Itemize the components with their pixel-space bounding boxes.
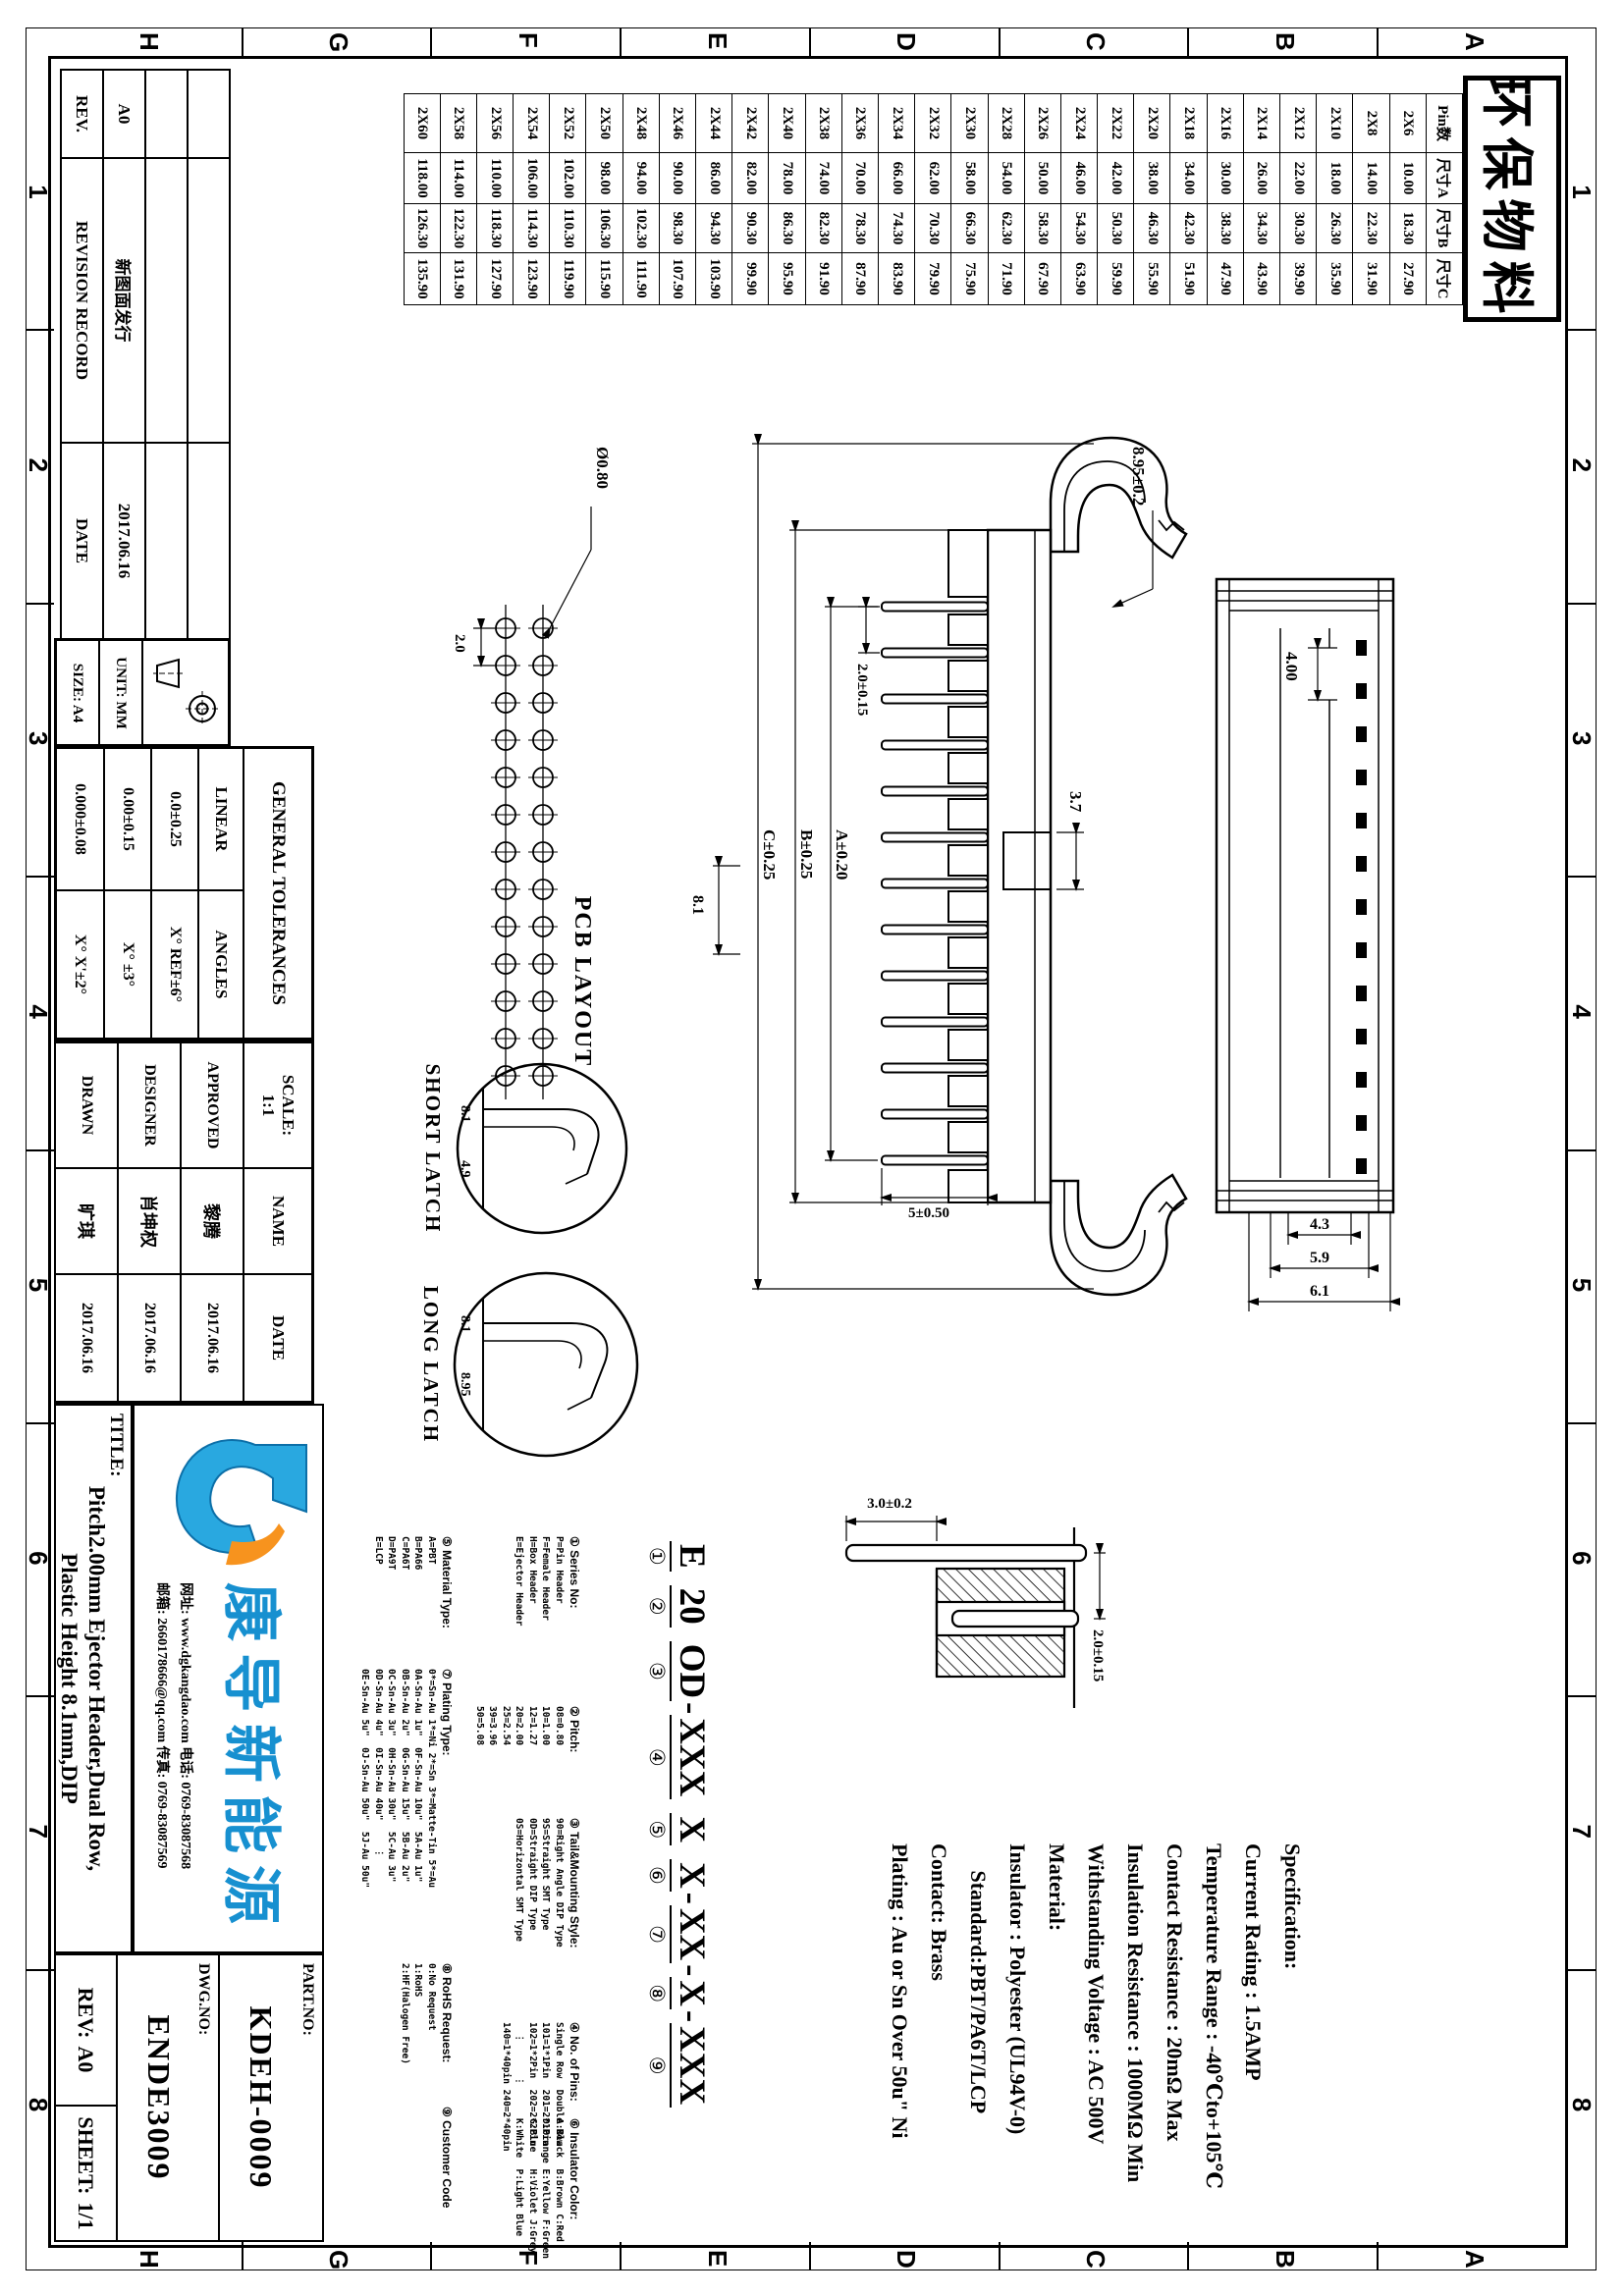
linear-label: LINEAR xyxy=(198,748,244,890)
zone-row-label: D xyxy=(891,32,921,51)
linear-value: 0.0±0.25 xyxy=(151,748,198,890)
legend-title: ⑤ Material Type: xyxy=(440,1536,454,1664)
pin-table-cell: 71.90 xyxy=(988,253,1024,305)
pin-table-row: 2X3262.0070.3079.90 xyxy=(915,94,951,305)
pin-table-cell: 106.30 xyxy=(586,204,623,253)
code-segment-text: X xyxy=(670,1859,711,1892)
legend-line: 0*=Sn-Au 1*=Ni 2*=Sn 3*=Matte-Tin 5*=Au xyxy=(425,1669,439,1957)
legend-line: E=LCP xyxy=(372,1536,386,1664)
tolerances-block: GENERAL TOLERANCES LINEAR 0.0±0.25 0.00±… xyxy=(54,746,314,1041)
pin-table-cell: 103.90 xyxy=(696,253,732,305)
pin-table-cell: 2X36 xyxy=(841,94,878,153)
dim-pin-pitch: 2.0±0.15 xyxy=(854,664,870,716)
legend-line: 0D-Sn-Au 4u" 0I-Sn-Au 40u" ⋮ xyxy=(372,1669,386,1957)
part-no-label: PART.NO: xyxy=(298,1963,316,2036)
pin-table-row: 2X3466.0074.3083.90 xyxy=(879,94,915,305)
pin-table-cell: 94.30 xyxy=(696,204,732,253)
pin-table-cell: 2X16 xyxy=(1207,94,1243,153)
pin-table-cell: 131.90 xyxy=(440,253,476,305)
legend-line: 90=Right Angle DIP Type xyxy=(553,1818,567,2016)
zone-col-label: 1 xyxy=(23,185,53,198)
pin-table-cell: 110.00 xyxy=(476,153,513,204)
zone-tick xyxy=(809,27,811,56)
dim-long-1: 8.1 xyxy=(458,1315,472,1333)
angles-label: ANGLES xyxy=(198,890,244,1039)
code-segment-text: OD xyxy=(670,1641,711,1702)
drawing-sheet: 4.00 4.3 5.9 6.1 xyxy=(0,0,1624,2296)
tolerances-title: GENERAL TOLERANCES xyxy=(244,748,312,1039)
pin-table-cell: 30.00 xyxy=(1207,153,1243,204)
pin-table-row: 2X1630.0038.3047.90 xyxy=(1207,94,1243,305)
logo-blue-shape xyxy=(177,1440,306,1553)
pin-table-cell: 115.90 xyxy=(586,253,623,305)
rev-label: REV: xyxy=(74,1988,99,2039)
code-segment-text: 20 xyxy=(670,1585,711,1628)
dim-short-1: 8.1 xyxy=(458,1105,472,1123)
latch-left xyxy=(1051,438,1186,558)
legend-line: B=PA66 xyxy=(411,1536,425,1664)
zone-col-label: 8 xyxy=(1566,2098,1597,2111)
zone-tick xyxy=(999,27,1001,56)
zone-tick xyxy=(1568,1149,1597,1151)
pin-table-cell: 110.30 xyxy=(550,204,586,253)
eco-material-text: 环保物料 xyxy=(1474,76,1551,323)
pin-table-cell: 38.30 xyxy=(1207,204,1243,253)
legend-line: 12=1.27 xyxy=(526,1706,540,1812)
pin-table-cell: 2X50 xyxy=(586,94,623,153)
dim-pin-len: 5±0.50 xyxy=(908,1205,949,1221)
doc-block: PART.NO: KDEH-0009 DWG.NO: ENDE3009 REV:… xyxy=(54,1953,324,2242)
dwg-no-value: ENDE3009 xyxy=(140,1955,177,2240)
dim-pad-dia: Ø0.80 xyxy=(593,447,612,489)
top-view: 4.00 4.3 5.9 6.1 xyxy=(1217,579,1393,1311)
dim-sec-pitch: 2.0±0.15 xyxy=(1090,1629,1106,1682)
legend-column: ⑧ RoHS Request:0:No Request1:RoHS2:HF(Ha… xyxy=(399,1963,455,2101)
legend-line: A:Black B:Brown C:Red xyxy=(553,2118,567,2242)
dim-latch-h: 8.95±0.2 xyxy=(1129,447,1148,506)
zone-row-label: H xyxy=(134,2250,164,2269)
revision-header-record: REVISION RECORD xyxy=(61,158,103,443)
pin-table-cell: 2X20 xyxy=(1134,94,1170,153)
pin-table-row: 2X5098.00106.30115.90 xyxy=(586,94,623,305)
zone-tick xyxy=(26,1149,54,1151)
legend-line: F=Female Header xyxy=(539,1536,553,1698)
pin-table-cell: 107.90 xyxy=(659,253,695,305)
pin-table-row: 2X1222.0030.3039.90 xyxy=(1280,94,1317,305)
pin-table-cell: 2X52 xyxy=(550,94,586,153)
signoff-name: 旷琪 xyxy=(55,1168,118,1274)
long-latch-label: LONG LATCH xyxy=(419,1286,443,1443)
pin-table-cell: 78.30 xyxy=(841,204,878,253)
title-line-2: Plastic Height 8.1mm,DIP xyxy=(56,1406,81,1951)
scale-value: 1:1 xyxy=(258,1095,278,1117)
pin-table-cell: 26.00 xyxy=(1243,153,1279,204)
pin-table-row: 2X2242.0050.3059.90 xyxy=(1098,94,1134,305)
zone-row-label: B xyxy=(1270,2250,1300,2269)
legend-line: 2:HF(Halogen Free) xyxy=(399,1963,412,2101)
legend-line: K:White P:Light Blue xyxy=(513,2118,526,2242)
pin-table-row: 2X4078.0086.3095.90 xyxy=(769,94,805,305)
pin-table-cell: 22.30 xyxy=(1353,204,1389,253)
code-segment: XX⑦ xyxy=(644,1905,711,1963)
code-segment: X⑥ xyxy=(644,1859,711,1892)
legend-line: 9S=Straight SMT Type xyxy=(539,1818,553,2016)
signoff-name: 黎腾 xyxy=(181,1168,244,1274)
legend-line: 08=0.80 xyxy=(553,1706,567,1812)
zone-tick xyxy=(1568,1969,1597,1971)
dim-w2: 5.9 xyxy=(1310,1250,1329,1266)
code-segment-number: ① xyxy=(644,1547,670,1566)
legend-line: A=PBT xyxy=(425,1536,439,1664)
code-segment: XXX⑨ xyxy=(644,2023,711,2108)
pin-table-cell: 2X24 xyxy=(1060,94,1097,153)
pin-table-cell: 2X6 xyxy=(1389,94,1426,153)
pin-table-cell: 51.90 xyxy=(1170,253,1207,305)
code-segment: E① xyxy=(644,1541,711,1572)
dim-short-2: 4.9 xyxy=(458,1160,472,1178)
pin-table-row: 2X60118.00126.30135.90 xyxy=(404,94,440,305)
short-latch-detail: 8.1 4.9 SHORT LATCH xyxy=(421,1064,626,1234)
ordering-code: E①20②OD③-XXX④X⑤X⑥-XX⑦-X⑧-XXX⑨ xyxy=(644,1541,711,2268)
zone-row-label: F xyxy=(513,32,543,48)
pin-table-cell: 2X12 xyxy=(1280,94,1317,153)
zone-tick xyxy=(1568,1695,1597,1697)
pin-table-cell: 10.00 xyxy=(1389,153,1426,204)
zone-col-label: 6 xyxy=(23,1551,53,1565)
zone-col-label: 3 xyxy=(1566,731,1597,745)
legend-title: ⑧ RoHS Request: xyxy=(440,1963,454,2101)
dwg-no-cell: DWG.NO: ENDE3009 xyxy=(116,1955,218,2240)
zone-row-label: G xyxy=(323,2250,353,2269)
pin-table-cell: 59.90 xyxy=(1098,253,1134,305)
zone-tick xyxy=(1568,603,1597,605)
code-segment-number: ⑦ xyxy=(644,1925,670,1944)
zone-col-label: 4 xyxy=(23,1004,53,1018)
pin-table-cell: 102.00 xyxy=(550,153,586,204)
pin-table-cell: 106.00 xyxy=(514,153,550,204)
code-separator: - xyxy=(672,1963,711,1977)
title-line-1: Pitch2.00mm Ejector Header,Dual Row, xyxy=(83,1406,109,1951)
pin-table-cell: 127.90 xyxy=(476,253,513,305)
angles-value: X° X'±2° xyxy=(56,890,104,1039)
code-separator: - xyxy=(672,1892,711,1905)
legend-title: ③ Tail&Mounting Style: xyxy=(568,1818,581,2016)
legend-line: 0A-Sn-Au 1u" 0F-Sn-Au 10u" 5A-Au 1u" xyxy=(411,1669,425,1957)
pin-table-cell: 46.00 xyxy=(1060,153,1097,204)
unit-cell: UNIT: MM xyxy=(99,640,142,746)
revision-entry-row: A0 新图面发行 2017.06.16 xyxy=(103,70,145,639)
dim-sec-len: 3.0±0.2 xyxy=(867,1496,912,1512)
pin-table-cell: 86.30 xyxy=(769,204,805,253)
pin-table-cell: 2X28 xyxy=(988,94,1024,153)
name-header: NAME xyxy=(244,1168,312,1274)
legend-line: E=Ejector Header xyxy=(513,1536,526,1698)
pin-table-cell: 2X32 xyxy=(915,94,951,153)
pin-table-cell: 67.90 xyxy=(1024,253,1060,305)
pin-table-cell: 2X14 xyxy=(1243,94,1279,153)
revision-empty-row xyxy=(188,70,230,639)
pin-table-cell: 70.00 xyxy=(841,153,878,204)
signoff-block: SCALE: 1:1 NAME DATE APPROVED黎腾2017.06.1… xyxy=(54,1041,314,1404)
zone-row-label: D xyxy=(891,2250,921,2269)
legend-line: 0B-Sn-Au 2u" 0G-Sn-Au 15u" 5B-Au 2u" xyxy=(399,1669,412,1957)
code-segment: XXX④ xyxy=(644,1715,711,1799)
zone-tick xyxy=(1377,27,1379,56)
pin-table-cell: 2X44 xyxy=(696,94,732,153)
dim-span-a: A±0.20 xyxy=(833,829,851,880)
pin-table-cell: 90.30 xyxy=(732,204,769,253)
spec-line: Standard:PBT/PA6T/LCP xyxy=(958,1843,998,2240)
zone-tick xyxy=(999,2242,1001,2270)
pin-table-cell: 70.30 xyxy=(915,204,951,253)
code-segment: X⑧ xyxy=(644,1977,711,2009)
spec-line: Contact Resistance : 20mΩ Max xyxy=(1155,1843,1194,2240)
pin-table-cell: 111.90 xyxy=(623,253,659,305)
dim-key: 3.7 xyxy=(1066,791,1085,813)
pin-table-cell: 2X34 xyxy=(879,94,915,153)
revision-empty-row xyxy=(145,70,188,639)
code-segment-number: ⑤ xyxy=(644,1820,670,1839)
zone-col-label: 3 xyxy=(23,731,53,745)
pin-table-cell: 2X18 xyxy=(1170,94,1207,153)
pin-table-cell: 22.00 xyxy=(1280,153,1317,204)
zone-tick xyxy=(1568,876,1597,878)
signoff-name: 肖坤权 xyxy=(118,1168,181,1274)
pin-table-cell: 54.00 xyxy=(988,153,1024,204)
zone-col-label: 1 xyxy=(1566,185,1597,198)
revision-header-date: DATE xyxy=(61,443,103,639)
pin-table-cell: 2X60 xyxy=(404,94,440,153)
legend-line: 0C-Sn-Au 3u" 0H-Sn-Au 30u" 5C-Au 3u" xyxy=(385,1669,399,1957)
zone-col-label: 5 xyxy=(1566,1278,1597,1292)
legend-column: ③ Tail&Mounting Style:90=Right Angle DIP… xyxy=(513,1818,581,2016)
pin-table-row: 2X1834.0042.3051.90 xyxy=(1170,94,1207,305)
code-segment-text: XXX xyxy=(670,1715,711,1799)
revision-table: A0 新图面发行 2017.06.16 REV. REVISION RECORD… xyxy=(60,69,231,640)
zone-tick xyxy=(1188,27,1190,56)
pin-table-cell: 102.30 xyxy=(623,204,659,253)
zone-tick xyxy=(26,603,54,605)
legend-line: 1:RoHS xyxy=(411,1963,425,2101)
pin-table-cell: 98.00 xyxy=(586,153,623,204)
signoff-role: DRAWN xyxy=(55,1042,118,1168)
zone-col-label: 8 xyxy=(23,2098,53,2111)
pin-table-cell: 62.30 xyxy=(988,204,1024,253)
legend-line: P=Pin Header xyxy=(553,1536,567,1698)
angles-value: X° ±3° xyxy=(104,890,151,1039)
projection-symbol-cell xyxy=(142,640,229,746)
pin-table-cell: 2X38 xyxy=(805,94,841,153)
company-logo xyxy=(169,1421,314,1569)
zone-tick xyxy=(26,1695,54,1697)
pin-table-cell: 55.90 xyxy=(1134,253,1170,305)
pin-table-row: 2X1018.0026.3035.90 xyxy=(1317,94,1353,305)
zone-row-label: B xyxy=(1270,32,1300,51)
pin-table-cell: 2X8 xyxy=(1353,94,1389,153)
dim-pad-pitch: 2.0 xyxy=(452,634,467,653)
legend-line: 0E-Sn-Au 5u" 0J-Sn-Au 50u" 5J-Au 50u" xyxy=(358,1669,372,1957)
spec-line: Plating : Au or Sn Over 50u" Ni xyxy=(880,1843,919,2240)
pin-table-cell: 43.90 xyxy=(1243,253,1279,305)
pin-table-row: 2X4282.0090.3099.90 xyxy=(732,94,769,305)
pin-table-cell: 26.30 xyxy=(1317,204,1353,253)
pin-table-row: 2X52102.00110.30119.90 xyxy=(550,94,586,305)
spec-line: Insulation Resistance : 1000MΩ Min xyxy=(1115,1843,1155,2240)
pin-table-cell: 90.00 xyxy=(659,153,695,204)
zone-tick xyxy=(431,27,433,56)
latch-right xyxy=(1051,1175,1186,1295)
dim-latch-off: 8.1 xyxy=(689,895,706,915)
revision-header-row: REV. REVISION RECORD DATE xyxy=(61,70,103,639)
zone-row-label: H xyxy=(134,32,164,51)
rev-value: A0 xyxy=(74,2046,99,2072)
legend-column: ② Pitch:08=0.8010=1.0012=1.2720=2.0025=2… xyxy=(473,1706,582,1812)
pin-table-row: 2X3058.0066.3075.90 xyxy=(951,94,988,305)
angles-value: X° REF±6° xyxy=(151,890,198,1039)
legend-column: ① Series No:P=Pin HeaderF=Female HeaderH… xyxy=(513,1536,581,1698)
pin-table-cell: 2X22 xyxy=(1098,94,1134,153)
pin-table-cell: 30.30 xyxy=(1280,204,1317,253)
code-segment-number: ④ xyxy=(644,1748,670,1767)
pin-table-cell: 83.90 xyxy=(879,253,915,305)
pin-table-cell: 126.30 xyxy=(404,204,440,253)
zone-tick xyxy=(1188,2242,1190,2270)
code-segment-number: ⑧ xyxy=(644,1984,670,2002)
pin-table-row: 2X610.0018.3027.90 xyxy=(1389,94,1426,305)
pin-table-cell: 38.00 xyxy=(1134,153,1170,204)
code-segment-number: ③ xyxy=(644,1662,670,1681)
pin-table-header: 尺寸C xyxy=(1426,253,1462,305)
zone-tick xyxy=(809,2242,811,2270)
pin-table-cell: 91.90 xyxy=(805,253,841,305)
pin-table-cell: 54.30 xyxy=(1060,204,1097,253)
pin-table-cell: 63.90 xyxy=(1060,253,1097,305)
code-segment-text: X xyxy=(670,1813,711,1845)
legend-line: D=PA9T xyxy=(385,1536,399,1664)
zone-col-label: 7 xyxy=(1566,1824,1597,1838)
signoff-role: DESIGNER xyxy=(118,1042,181,1168)
zone-col-label: 7 xyxy=(23,1824,53,1838)
pin-table-cell: 135.90 xyxy=(404,253,440,305)
pin-table-cell: 47.90 xyxy=(1207,253,1243,305)
pin-table-cell: 99.90 xyxy=(732,253,769,305)
zone-row-label: C xyxy=(1080,32,1110,51)
legend-line: 140=1*40pin 240=2*40pin xyxy=(500,2022,514,2160)
code-segment-text: X xyxy=(670,1977,711,2009)
pin-table-row: 2X1426.0034.3043.90 xyxy=(1243,94,1279,305)
pin-table-cell: 2X10 xyxy=(1317,94,1353,153)
front-view: 3.7 8.95±0.2 2.0±0.15 5±0.50 A±0.20 xyxy=(689,438,1186,1295)
sheet-cell: SHEET: 1/1 xyxy=(56,2107,116,2240)
legend-title: ① Series No: xyxy=(568,1536,581,1698)
pin-table-cell: 74.00 xyxy=(805,153,841,204)
legend-line: 50=5.08 xyxy=(473,1706,487,1812)
code-separator: - xyxy=(672,1701,711,1715)
part-no-cell: PART.NO: KDEH-0009 xyxy=(218,1955,322,2240)
zone-row-label: E xyxy=(702,2250,732,2267)
zone-tick xyxy=(26,329,54,331)
format-block: UNIT: MM SIZE: A4 xyxy=(54,638,231,746)
pin-table-cell: 58.30 xyxy=(1024,204,1060,253)
code-segment-text: XXX xyxy=(670,2023,711,2108)
pin-table-header-row: Pin数尺寸A尺寸B尺寸C xyxy=(1426,94,1462,305)
spec-line: Withstanding Voltage : AC 500V xyxy=(1076,1843,1115,2240)
rev-cell: REV: A0 xyxy=(56,1955,116,2107)
dim-span-b: B±0.25 xyxy=(797,829,816,879)
pin-table-row: 2X4690.0098.30107.90 xyxy=(659,94,695,305)
pin-table-cell: 35.90 xyxy=(1317,253,1353,305)
third-angle-projection-icon xyxy=(153,652,218,734)
pin-table-cell: 86.00 xyxy=(696,153,732,204)
signoff-role: APPROVED xyxy=(181,1042,244,1168)
company-block: 康导新能源 网址: www.dgkangdao.com 电话: 0769-830… xyxy=(133,1404,324,1953)
legend-column: ⑦ Plating Type:0*=Sn-Au 1*=Ni 2*=Sn 3*=M… xyxy=(358,1669,454,1957)
landscape-canvas: 4.00 4.3 5.9 6.1 xyxy=(0,0,1624,2296)
spec-line: Current Rating : 1.5AMP xyxy=(1233,1843,1272,2240)
pin-table-row: 2X56110.00118.30127.90 xyxy=(476,94,513,305)
legend-line: 20=2.00 xyxy=(513,1706,526,1812)
pin-table-cell: 42.30 xyxy=(1170,204,1207,253)
title-block: TITLE: Pitch2.00mm Ejector Header,Dual R… xyxy=(54,1404,133,1953)
linear-value: 0.00±0.15 xyxy=(104,748,151,890)
pin-table-cell: 87.90 xyxy=(841,253,878,305)
spec-line: Specification: xyxy=(1272,1843,1312,2240)
dim-long-2: 8.95 xyxy=(458,1372,472,1397)
pin-table-cell: 2X56 xyxy=(476,94,513,153)
dwg-no-label: DWG.NO: xyxy=(194,1963,212,2035)
dim-w1: 4.3 xyxy=(1310,1216,1329,1233)
legend-column: ⑨ Customer Code xyxy=(438,2107,454,2240)
pin-table-cell: 122.30 xyxy=(440,204,476,253)
pin-table-row: 2X3670.0078.3087.90 xyxy=(841,94,878,305)
zone-tick xyxy=(1568,1422,1597,1424)
pin-table-cell: 118.00 xyxy=(404,153,440,204)
pin-size-table: Pin数尺寸A尺寸B尺寸C2X610.0018.3027.902X814.002… xyxy=(404,93,1463,305)
pin-table-row: 2X2854.0062.3071.90 xyxy=(988,94,1024,305)
pin-table-cell: 34.00 xyxy=(1170,153,1207,204)
revision-rev: A0 xyxy=(103,70,145,158)
pin-table-cell: 27.90 xyxy=(1389,253,1426,305)
scale-cell: SCALE: 1:1 xyxy=(244,1042,312,1168)
legend-line: H=Box Header xyxy=(526,1536,540,1698)
pin-table-cell: 2X58 xyxy=(440,94,476,153)
legend-line: 0:No Request xyxy=(425,1963,439,2101)
zone-col-label: 5 xyxy=(23,1278,53,1292)
pin-table-row: 2X4486.0094.30103.90 xyxy=(696,94,732,305)
pin-table-cell: 114.30 xyxy=(514,204,550,253)
dim-w3: 6.1 xyxy=(1310,1283,1329,1300)
spec-line: Temperature Range : -40℃to+105℃ xyxy=(1194,1843,1233,2240)
zone-col-label: 2 xyxy=(1566,458,1597,472)
pin-table-row: 2X54106.00114.30123.90 xyxy=(514,94,550,305)
zone-row-label: E xyxy=(702,32,732,49)
size-cell: SIZE: A4 xyxy=(56,640,99,746)
pin-table-cell: 66.00 xyxy=(879,153,915,204)
pin-table-cell: 75.90 xyxy=(951,253,988,305)
sheet-value: 1/1 xyxy=(74,2202,99,2229)
pin-table-cell: 74.30 xyxy=(879,204,915,253)
zone-tick xyxy=(242,27,244,56)
pin-table-cell: 2X40 xyxy=(769,94,805,153)
legend-title: ⑨ Customer Code xyxy=(440,2107,454,2240)
pin-table-cell: 2X26 xyxy=(1024,94,1060,153)
pin-table-row: 2X2446.0054.3063.90 xyxy=(1060,94,1097,305)
company-contact-1: 网址: www.dgkangdao.com 电话: 0769-83087568 xyxy=(177,1582,196,1869)
pin-table-cell: 42.00 xyxy=(1098,153,1134,204)
pin-table-cell: 2X54 xyxy=(514,94,550,153)
pin-table-cell: 98.30 xyxy=(659,204,695,253)
pin-table-cell: 18.00 xyxy=(1317,153,1353,204)
